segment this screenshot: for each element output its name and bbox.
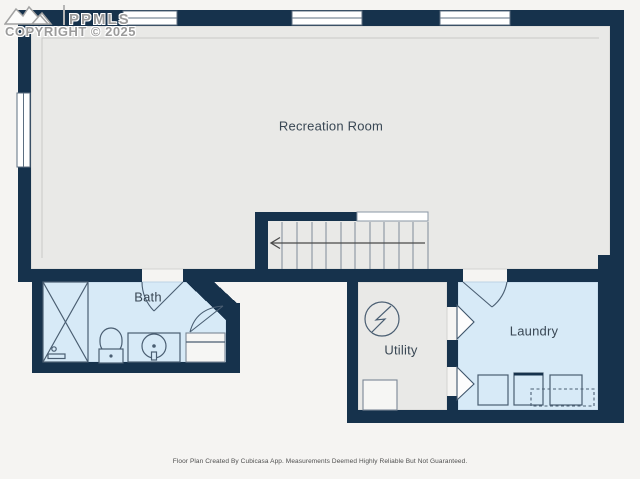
bath-nook-cabinet bbox=[186, 333, 225, 362]
bath-label: Bath bbox=[134, 290, 162, 305]
recreation-room-label: Recreation Room bbox=[279, 119, 383, 134]
water-heater bbox=[363, 380, 397, 410]
wall-utility-left bbox=[347, 269, 358, 423]
floor-plan bbox=[0, 0, 640, 479]
wall-right-upper bbox=[610, 10, 624, 262]
floor-plan-page: Recreation Room Bath Utility Laundry PPM… bbox=[0, 0, 640, 479]
wall-utility-laundry-stub-mid bbox=[447, 340, 458, 367]
wall-utility-laundry-stub-bottom bbox=[447, 396, 458, 410]
wall-utility-laundry-stub-top bbox=[447, 269, 458, 307]
recreation-room-floor bbox=[31, 26, 610, 269]
wall-bath-left bbox=[32, 278, 43, 373]
stairs-top-railing bbox=[357, 212, 428, 221]
wall-bottom bbox=[347, 410, 624, 423]
footer-disclaimer: Floor Plan Created By Cubicasa App. Meas… bbox=[0, 458, 640, 465]
laundry-floor bbox=[458, 282, 598, 410]
sink-drain-dot bbox=[152, 344, 156, 348]
toilet-flush-dot bbox=[109, 354, 112, 357]
wall-stairs-top bbox=[255, 212, 357, 221]
sink-faucet bbox=[152, 352, 157, 360]
wall-bath-bottom bbox=[32, 362, 240, 373]
laundry-label: Laundry bbox=[510, 324, 558, 339]
utility-label: Utility bbox=[384, 343, 417, 358]
wall-mid-right-segment bbox=[507, 269, 624, 282]
wall-mid-center-segment bbox=[183, 269, 463, 282]
